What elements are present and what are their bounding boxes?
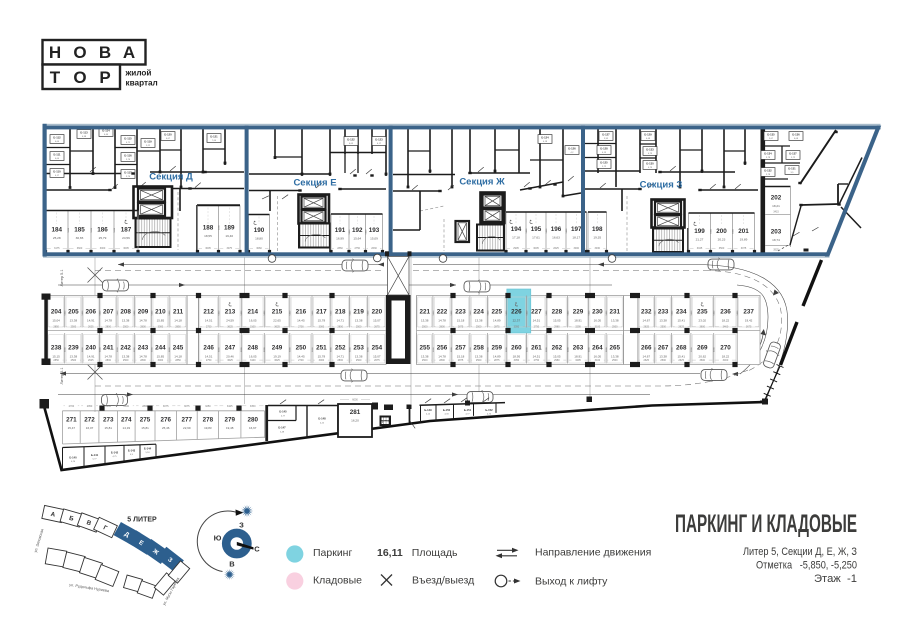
svg-text:3000: 3000 bbox=[319, 326, 325, 329]
svg-text:Отметка -5,850, -5,250: Отметка -5,850, -5,250 bbox=[756, 560, 857, 572]
svg-text:15,07: 15,07 bbox=[373, 319, 381, 323]
svg-text:Б-119: Б-119 bbox=[144, 139, 152, 143]
svg-text:18,74: 18,74 bbox=[772, 238, 780, 242]
svg-text:ПАРКИНГ И КЛАДОВЫЕ: ПАРКИНГ И КЛАДОВЫЕ bbox=[675, 510, 857, 538]
svg-text:З: З bbox=[239, 521, 244, 530]
svg-text:15,05: 15,05 bbox=[553, 355, 561, 359]
svg-text:Б-134: Б-134 bbox=[764, 151, 772, 155]
svg-text:18,95: 18,95 bbox=[513, 355, 521, 359]
svg-text:14,67: 14,67 bbox=[643, 319, 651, 323]
svg-text:19,48: 19,48 bbox=[226, 426, 234, 430]
svg-text:Литер 5, Секции Д, Е, Ж, З: Литер 5, Секции Д, Е, Ж, З bbox=[743, 546, 857, 558]
svg-text:13,38: 13,38 bbox=[70, 355, 78, 359]
svg-text:13,38: 13,38 bbox=[611, 355, 619, 359]
svg-text:2875: 2875 bbox=[458, 359, 464, 362]
svg-text:16,11: 16,11 bbox=[377, 547, 403, 559]
svg-text:13,38: 13,38 bbox=[611, 319, 619, 323]
svg-text:265: 265 bbox=[610, 345, 621, 352]
svg-text:2800: 2800 bbox=[439, 359, 445, 362]
svg-text:246: 246 bbox=[203, 345, 214, 352]
svg-text:206: 206 bbox=[86, 309, 97, 316]
svg-text:195: 195 bbox=[531, 226, 542, 233]
svg-text:2850: 2850 bbox=[175, 359, 181, 362]
svg-text:14,78: 14,78 bbox=[438, 355, 446, 359]
svg-text:14,71: 14,71 bbox=[336, 355, 344, 359]
svg-text:В: В bbox=[229, 560, 235, 569]
svg-text:214: 214 bbox=[248, 309, 259, 316]
svg-text:22,37: 22,37 bbox=[513, 319, 521, 323]
svg-text:3000: 3000 bbox=[100, 247, 106, 250]
svg-text:16,20: 16,20 bbox=[351, 419, 359, 423]
svg-text:190: 190 bbox=[254, 227, 265, 234]
svg-text:Б-124: Б-124 bbox=[541, 135, 549, 139]
svg-text:14,67: 14,67 bbox=[643, 355, 651, 359]
svg-text:189: 189 bbox=[224, 225, 235, 232]
svg-text:Б-122: Б-122 bbox=[347, 137, 355, 141]
svg-text:15,85: 15,85 bbox=[157, 319, 165, 323]
svg-text:14,78: 14,78 bbox=[139, 319, 147, 323]
svg-text:237: 237 bbox=[743, 309, 754, 316]
svg-text:Б-123: Б-123 bbox=[375, 137, 383, 141]
svg-text:209: 209 bbox=[138, 309, 149, 316]
svg-text:228: 228 bbox=[552, 309, 563, 316]
svg-text:274: 274 bbox=[121, 417, 132, 424]
svg-text:3600: 3600 bbox=[700, 359, 706, 362]
svg-text:278: 278 bbox=[203, 417, 214, 424]
svg-text:Н: Н bbox=[49, 43, 61, 62]
svg-text:202: 202 bbox=[771, 195, 782, 202]
svg-text:203: 203 bbox=[771, 229, 782, 236]
svg-text:25,46: 25,46 bbox=[162, 426, 170, 430]
svg-text:2630: 2630 bbox=[371, 247, 377, 250]
svg-text:2500: 2500 bbox=[660, 359, 666, 362]
svg-text:257: 257 bbox=[455, 345, 466, 352]
svg-text:3600: 3600 bbox=[700, 326, 706, 329]
svg-text:215: 215 bbox=[272, 309, 283, 316]
svg-text:2500: 2500 bbox=[71, 359, 77, 362]
svg-text:13,38: 13,38 bbox=[659, 355, 667, 359]
svg-text:Б-151: Б-151 bbox=[464, 408, 472, 412]
svg-text:13,38: 13,38 bbox=[122, 319, 130, 323]
svg-text:198: 198 bbox=[592, 226, 603, 233]
svg-text:270: 270 bbox=[720, 345, 731, 352]
svg-text:15,07: 15,07 bbox=[373, 355, 381, 359]
svg-text:15,78: 15,78 bbox=[318, 355, 326, 359]
svg-text:224: 224 bbox=[473, 309, 484, 316]
svg-text:2500: 2500 bbox=[612, 326, 618, 329]
svg-text:О: О bbox=[73, 68, 86, 87]
svg-text:13,38: 13,38 bbox=[475, 355, 483, 359]
svg-text:18,21: 18,21 bbox=[772, 204, 780, 208]
svg-text:2625: 2625 bbox=[678, 326, 684, 329]
svg-text:3075: 3075 bbox=[226, 247, 232, 250]
svg-text:3000: 3000 bbox=[573, 247, 579, 250]
svg-text:13,38: 13,38 bbox=[421, 319, 429, 323]
svg-text:3075: 3075 bbox=[184, 405, 190, 408]
svg-text:250: 250 bbox=[296, 345, 307, 352]
svg-text:Б-130: Б-130 bbox=[646, 161, 654, 165]
svg-text:3175: 3175 bbox=[54, 247, 60, 250]
svg-text:19,40: 19,40 bbox=[225, 234, 233, 238]
svg-text:25,28: 25,28 bbox=[53, 236, 61, 240]
svg-text:225: 225 bbox=[492, 309, 503, 316]
svg-text:3350: 3350 bbox=[250, 405, 256, 408]
svg-text:15,41: 15,41 bbox=[677, 319, 685, 323]
svg-text:Б-144: Б-144 bbox=[144, 447, 152, 451]
svg-text:квартал: квартал bbox=[126, 79, 158, 88]
svg-text:2750: 2750 bbox=[206, 359, 212, 362]
svg-text:3250: 3250 bbox=[205, 405, 211, 408]
svg-text:244: 244 bbox=[155, 345, 166, 352]
svg-text:25,79: 25,79 bbox=[99, 236, 107, 240]
svg-text:14,45: 14,45 bbox=[297, 355, 305, 359]
svg-text:2850: 2850 bbox=[53, 359, 59, 362]
svg-text:2875: 2875 bbox=[494, 359, 500, 362]
svg-text:276: 276 bbox=[160, 417, 171, 424]
svg-text:2980: 2980 bbox=[554, 359, 560, 362]
svg-text:Въезд/выезд: Въезд/выезд bbox=[412, 575, 474, 587]
svg-text:227: 227 bbox=[531, 309, 542, 316]
svg-text:Б-148: Б-148 bbox=[318, 417, 326, 421]
svg-text:241: 241 bbox=[103, 345, 114, 352]
svg-text:2500: 2500 bbox=[660, 326, 666, 329]
svg-text:20,23: 20,23 bbox=[718, 237, 726, 241]
svg-text:14,89: 14,89 bbox=[493, 319, 501, 323]
svg-text:277: 277 bbox=[182, 417, 193, 424]
svg-text:13,38: 13,38 bbox=[122, 355, 130, 359]
svg-text:187: 187 bbox=[121, 227, 132, 234]
svg-text:3100: 3100 bbox=[595, 326, 601, 329]
svg-text:236: 236 bbox=[720, 309, 731, 316]
svg-text:А: А bbox=[123, 43, 135, 62]
svg-text:249: 249 bbox=[272, 345, 283, 352]
svg-text:222: 222 bbox=[437, 309, 448, 316]
svg-text:Б-127: Б-127 bbox=[602, 132, 610, 136]
svg-text:3100: 3100 bbox=[250, 359, 256, 362]
svg-text:18,91: 18,91 bbox=[574, 355, 582, 359]
svg-text:3600: 3600 bbox=[77, 247, 83, 250]
svg-text:19,89: 19,89 bbox=[740, 237, 748, 241]
svg-text:14,51: 14,51 bbox=[533, 319, 541, 323]
svg-text:16,67: 16,67 bbox=[249, 426, 257, 430]
svg-text:С: С bbox=[254, 545, 260, 554]
svg-text:14,89: 14,89 bbox=[493, 355, 501, 359]
svg-text:14,78: 14,78 bbox=[438, 319, 446, 323]
svg-text:15,78: 15,78 bbox=[318, 319, 326, 323]
svg-text:2625: 2625 bbox=[88, 326, 94, 329]
svg-text:14,18: 14,18 bbox=[174, 355, 182, 359]
svg-text:211: 211 bbox=[173, 309, 184, 316]
svg-text:В: В bbox=[99, 43, 111, 62]
svg-text:229: 229 bbox=[573, 309, 584, 316]
svg-text:275: 275 bbox=[140, 417, 151, 424]
svg-text:3100: 3100 bbox=[250, 326, 256, 329]
svg-text:205: 205 bbox=[68, 309, 79, 316]
svg-text:15,85: 15,85 bbox=[157, 355, 165, 359]
svg-text:219: 219 bbox=[353, 309, 364, 316]
svg-text:13,38: 13,38 bbox=[421, 355, 429, 359]
svg-text:240: 240 bbox=[86, 345, 97, 352]
svg-text:185: 185 bbox=[74, 227, 85, 234]
svg-text:19,19: 19,19 bbox=[273, 355, 281, 359]
svg-text:3415: 3415 bbox=[773, 210, 779, 213]
svg-text:2850: 2850 bbox=[53, 326, 59, 329]
svg-text:14,33: 14,33 bbox=[123, 426, 131, 430]
svg-text:15,18: 15,18 bbox=[457, 355, 465, 359]
svg-text:3100: 3100 bbox=[595, 359, 601, 362]
svg-text:14,51: 14,51 bbox=[205, 319, 213, 323]
svg-text:Б-143: Б-143 bbox=[128, 449, 136, 453]
svg-text:20,62: 20,62 bbox=[699, 355, 707, 359]
svg-text:19,35: 19,35 bbox=[593, 235, 601, 239]
svg-text:184: 184 bbox=[51, 227, 62, 234]
svg-text:Паркинг: Паркинг bbox=[313, 547, 352, 559]
svg-text:2750: 2750 bbox=[354, 247, 360, 250]
svg-text:Б-110: Б-110 bbox=[53, 169, 61, 173]
svg-text:Б-132: Б-132 bbox=[764, 168, 772, 172]
svg-text:2625: 2625 bbox=[553, 247, 559, 250]
svg-text:Т: Т bbox=[50, 68, 61, 87]
svg-text:6000: 6000 bbox=[352, 399, 358, 402]
svg-text:14,78: 14,78 bbox=[139, 355, 147, 359]
svg-text:Б-135: Б-135 bbox=[767, 132, 775, 136]
svg-text:3050: 3050 bbox=[514, 359, 520, 362]
svg-text:Направление движения: Направление движения bbox=[535, 547, 651, 559]
svg-text:Б-125: Б-125 bbox=[600, 160, 608, 164]
svg-text:16,05: 16,05 bbox=[249, 319, 257, 323]
svg-text:204: 204 bbox=[51, 309, 62, 316]
svg-text:3500: 3500 bbox=[719, 247, 725, 250]
svg-text:2500: 2500 bbox=[422, 359, 428, 362]
svg-text:259: 259 bbox=[492, 345, 503, 352]
svg-text:220: 220 bbox=[372, 309, 383, 316]
svg-text:231: 231 bbox=[610, 309, 621, 316]
svg-text:208: 208 bbox=[120, 309, 131, 316]
svg-text:260: 260 bbox=[511, 345, 522, 352]
svg-text:253: 253 bbox=[353, 345, 364, 352]
svg-text:Б-136: Б-136 bbox=[792, 132, 800, 136]
svg-text:15,41: 15,41 bbox=[677, 355, 685, 359]
svg-text:3675: 3675 bbox=[746, 326, 752, 329]
svg-text:2625: 2625 bbox=[644, 326, 650, 329]
svg-text:212: 212 bbox=[203, 309, 214, 316]
svg-text:14,45: 14,45 bbox=[297, 319, 305, 323]
svg-text:Б-120: Б-120 bbox=[164, 132, 172, 136]
svg-text:3425: 3425 bbox=[227, 405, 233, 408]
svg-text:Секция Ж: Секция Ж bbox=[459, 177, 505, 188]
svg-text:Б-131: Б-131 bbox=[788, 166, 796, 170]
svg-text:Секция З: Секция З bbox=[640, 180, 683, 191]
svg-text:254: 254 bbox=[372, 345, 383, 352]
svg-text:3005: 3005 bbox=[533, 247, 539, 250]
svg-text:252: 252 bbox=[335, 345, 346, 352]
svg-text:15,47: 15,47 bbox=[68, 426, 76, 430]
svg-text:2500: 2500 bbox=[422, 326, 428, 329]
svg-text:Б-149: Б-149 bbox=[424, 408, 432, 412]
svg-text:19,42: 19,42 bbox=[745, 319, 753, 323]
svg-text:2750: 2750 bbox=[206, 326, 212, 329]
svg-text:2500: 2500 bbox=[71, 326, 77, 329]
svg-text:2700: 2700 bbox=[298, 359, 304, 362]
svg-text:2800: 2800 bbox=[105, 359, 111, 362]
svg-text:20,46: 20,46 bbox=[226, 355, 234, 359]
svg-text:3045: 3045 bbox=[697, 247, 703, 250]
svg-text:Кладовые: Кладовые bbox=[313, 575, 362, 587]
svg-text:Б-112: Б-112 bbox=[53, 135, 61, 139]
svg-text:3075: 3075 bbox=[163, 405, 169, 408]
svg-text:22,65: 22,65 bbox=[273, 319, 281, 323]
svg-text:2500: 2500 bbox=[356, 359, 362, 362]
svg-text:268: 268 bbox=[676, 345, 687, 352]
svg-text:245: 245 bbox=[173, 345, 184, 352]
svg-text:194: 194 bbox=[511, 226, 522, 233]
svg-text:14,78: 14,78 bbox=[104, 319, 112, 323]
svg-text:2875: 2875 bbox=[458, 326, 464, 329]
svg-text:13,38: 13,38 bbox=[355, 319, 363, 323]
svg-text:13,38: 13,38 bbox=[70, 319, 78, 323]
svg-text:13,38: 13,38 bbox=[659, 319, 667, 323]
svg-text:Секция Д: Секция Д bbox=[149, 172, 193, 183]
svg-text:3625: 3625 bbox=[274, 359, 280, 362]
svg-text:2500: 2500 bbox=[124, 405, 130, 408]
svg-text:16,05: 16,05 bbox=[594, 355, 602, 359]
svg-text:271: 271 bbox=[66, 417, 77, 424]
svg-text:14,71: 14,71 bbox=[336, 319, 344, 323]
svg-text:Б-115: Б-115 bbox=[124, 136, 132, 140]
svg-text:262: 262 bbox=[552, 345, 563, 352]
svg-text:232: 232 bbox=[641, 309, 652, 316]
svg-text:24,59: 24,59 bbox=[226, 319, 234, 323]
svg-text:269: 269 bbox=[697, 345, 708, 352]
svg-text:3060: 3060 bbox=[256, 247, 262, 250]
svg-text:242: 242 bbox=[120, 345, 131, 352]
svg-text:3625: 3625 bbox=[227, 326, 233, 329]
svg-text:191: 191 bbox=[335, 227, 346, 234]
svg-text:193: 193 bbox=[369, 227, 380, 234]
svg-text:16,05: 16,05 bbox=[249, 355, 257, 359]
svg-text:Б-116: Б-116 bbox=[124, 153, 132, 157]
svg-text:2700: 2700 bbox=[69, 405, 75, 408]
svg-text:14,91: 14,91 bbox=[87, 355, 95, 359]
svg-text:Р: Р bbox=[99, 68, 110, 87]
svg-text:3295: 3295 bbox=[575, 326, 581, 329]
svg-text:3075: 3075 bbox=[741, 247, 747, 250]
svg-text:14,51: 14,51 bbox=[205, 355, 213, 359]
svg-text:Этаж -1: Этаж -1 bbox=[814, 573, 857, 585]
svg-text:Б-133: Б-133 bbox=[646, 147, 654, 151]
svg-text:197: 197 bbox=[571, 226, 582, 233]
svg-text:2500: 2500 bbox=[123, 359, 129, 362]
svg-text:2905: 2905 bbox=[513, 247, 519, 250]
svg-text:13,38: 13,38 bbox=[355, 355, 363, 359]
svg-text:15,81: 15,81 bbox=[141, 426, 149, 430]
svg-text:255: 255 bbox=[419, 345, 430, 352]
svg-text:200: 200 bbox=[716, 228, 727, 235]
svg-text:248: 248 bbox=[248, 345, 259, 352]
svg-text:267: 267 bbox=[658, 345, 669, 352]
svg-text:Б-150: Б-150 bbox=[443, 408, 451, 412]
svg-text:16,63: 16,63 bbox=[552, 235, 560, 239]
svg-text:15,18: 15,18 bbox=[457, 319, 465, 323]
svg-text:3005: 3005 bbox=[123, 247, 129, 250]
svg-text:18,17: 18,17 bbox=[572, 235, 580, 239]
svg-text:14,51: 14,51 bbox=[533, 355, 541, 359]
svg-text:Б-140: Б-140 bbox=[69, 456, 77, 460]
svg-text:Б-145: Б-145 bbox=[279, 410, 287, 414]
svg-text:3000: 3000 bbox=[158, 326, 164, 329]
svg-text:247: 247 bbox=[225, 345, 236, 352]
svg-text:272: 272 bbox=[84, 417, 95, 424]
svg-text:14,18: 14,18 bbox=[174, 319, 182, 323]
svg-text:2500: 2500 bbox=[123, 326, 129, 329]
svg-text:264: 264 bbox=[592, 345, 603, 352]
svg-text:Б-129: Б-129 bbox=[644, 132, 652, 136]
svg-text:22,69: 22,69 bbox=[183, 426, 191, 430]
svg-text:2700: 2700 bbox=[298, 326, 304, 329]
svg-text:3000: 3000 bbox=[319, 359, 325, 362]
svg-text:280: 280 bbox=[247, 417, 258, 424]
svg-text:2500: 2500 bbox=[476, 359, 482, 362]
svg-text:3625: 3625 bbox=[227, 359, 233, 362]
svg-text:243: 243 bbox=[138, 345, 149, 352]
svg-text:Секция Е: Секция Е bbox=[293, 178, 336, 189]
svg-text:15,09: 15,09 bbox=[370, 236, 378, 240]
svg-text:Б-141: Б-141 bbox=[91, 453, 99, 457]
svg-text:Площадь: Площадь bbox=[412, 547, 458, 559]
svg-text:251: 251 bbox=[316, 345, 327, 352]
svg-text:234: 234 bbox=[676, 309, 687, 316]
svg-text:Б-142: Б-142 bbox=[111, 451, 119, 455]
svg-text:21,27: 21,27 bbox=[696, 237, 704, 241]
svg-text:3005: 3005 bbox=[205, 247, 211, 250]
svg-text:18,80: 18,80 bbox=[255, 236, 263, 240]
svg-text:16,05: 16,05 bbox=[594, 319, 602, 323]
svg-text:Б-147: Б-147 bbox=[278, 426, 286, 430]
svg-text:2875: 2875 bbox=[494, 326, 500, 329]
svg-text:15,15: 15,15 bbox=[52, 355, 60, 359]
svg-text:192: 192 bbox=[352, 227, 363, 234]
svg-text:281: 281 bbox=[350, 409, 361, 416]
svg-text:279: 279 bbox=[224, 417, 235, 424]
svg-text:15,04: 15,04 bbox=[52, 319, 60, 323]
svg-text:223: 223 bbox=[455, 309, 466, 316]
svg-text:2750: 2750 bbox=[534, 359, 540, 362]
svg-text:266: 266 bbox=[641, 345, 652, 352]
svg-text:О: О bbox=[73, 43, 86, 62]
svg-text:2675: 2675 bbox=[374, 359, 380, 362]
svg-text:3050: 3050 bbox=[514, 326, 520, 329]
svg-text:17,61: 17,61 bbox=[532, 235, 540, 239]
svg-text:15,64: 15,64 bbox=[353, 236, 361, 240]
svg-text:2800: 2800 bbox=[439, 326, 445, 329]
svg-text:Литер 5.1: Литер 5.1 bbox=[60, 270, 64, 287]
svg-text:5 ЛИТЕР: 5 ЛИТЕР bbox=[127, 517, 157, 524]
svg-text:Б-128: Б-128 bbox=[600, 146, 608, 150]
svg-text:199: 199 bbox=[694, 228, 705, 235]
svg-text:3460: 3460 bbox=[723, 359, 729, 362]
svg-text:210: 210 bbox=[155, 309, 166, 316]
svg-text:13,38: 13,38 bbox=[475, 319, 483, 323]
svg-text:Б-113: Б-113 bbox=[80, 130, 88, 134]
svg-text:Ю: Ю bbox=[214, 534, 222, 543]
svg-text:186: 186 bbox=[97, 227, 108, 234]
svg-text:230: 230 bbox=[592, 309, 603, 316]
svg-text:235: 235 bbox=[697, 309, 708, 316]
svg-text:2625: 2625 bbox=[678, 359, 684, 362]
svg-text:16,99: 16,99 bbox=[336, 236, 344, 240]
svg-text:жилой: жилой bbox=[125, 69, 152, 78]
svg-text:2980: 2980 bbox=[554, 326, 560, 329]
